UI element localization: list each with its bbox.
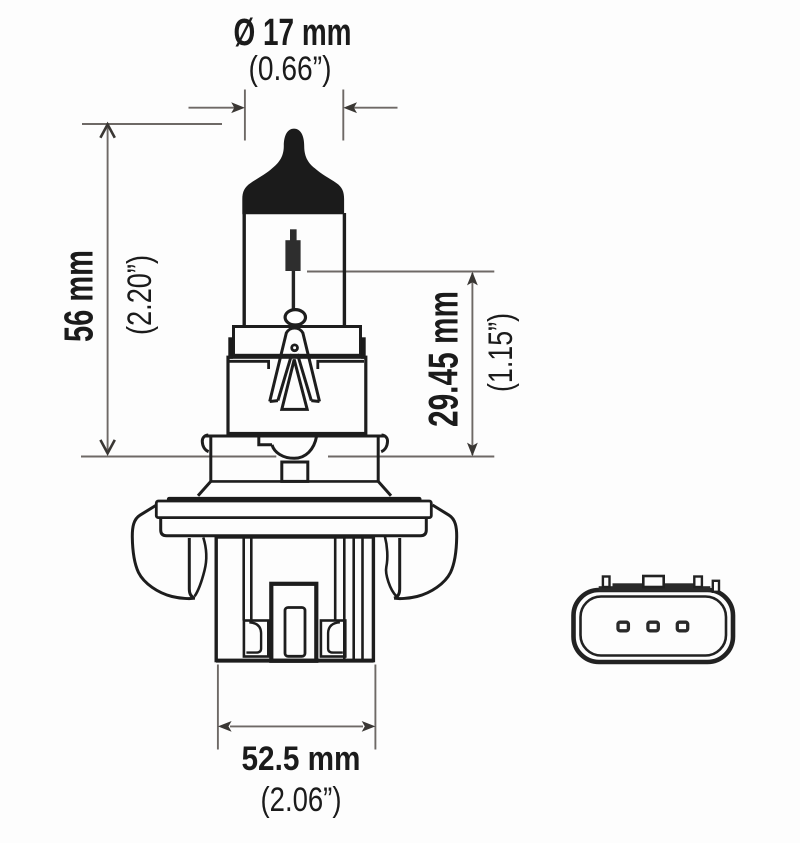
svg-text:(0.66”): (0.66”): [249, 50, 332, 88]
svg-text:56 mm: 56 mm: [56, 250, 102, 342]
svg-text:29.45 mm: 29.45 mm: [420, 291, 467, 427]
svg-text:(2.20”): (2.20”): [121, 255, 159, 335]
svg-text:52.5 mm: 52.5 mm: [242, 740, 361, 778]
svg-text:Ø 17 mm: Ø 17 mm: [234, 12, 352, 54]
svg-text:(2.06”): (2.06”): [261, 781, 342, 819]
svg-text:(1.15”): (1.15”): [482, 313, 520, 392]
